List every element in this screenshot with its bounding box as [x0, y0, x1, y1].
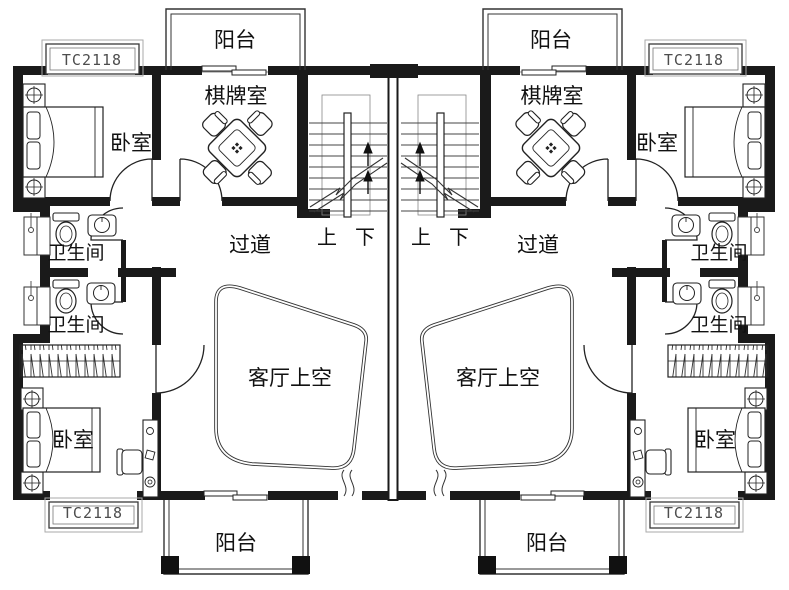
right-unit-mirrored — [394, 9, 775, 574]
bathroom-label-left-lower: 卫生间 — [47, 314, 104, 336]
bathroom-label-right-upper: 卫生间 — [690, 242, 747, 264]
corridor-label-right: 过道 — [517, 233, 559, 257]
party-wall — [370, 64, 418, 500]
balcony-label-bottom-left: 阳台 — [215, 531, 257, 555]
stairs-up-label-right: 上 — [411, 225, 431, 249]
bedroom-label-top-right: 卧室 — [636, 131, 678, 155]
window-code-top-right: TC2118 — [664, 51, 724, 69]
window-code-bottom-right: TC2118 — [664, 504, 724, 522]
left-unit — [13, 9, 394, 574]
bathroom-label-right-lower: 卫生间 — [690, 314, 747, 336]
living-void-label-left: 客厅上空 — [248, 366, 332, 390]
floor-plan-page: TC2118 TC2118 TC2118 TC2118 阳台 阳台 阳台 阳台 … — [0, 0, 789, 590]
bedroom-label-bottom-left: 卧室 — [52, 428, 94, 452]
balcony-label-bottom-right: 阳台 — [526, 531, 568, 555]
stairs-down-label-right: 下 — [449, 225, 469, 249]
bathroom-label-left-upper: 卫生间 — [47, 242, 104, 264]
window-code-top-left: TC2118 — [62, 51, 122, 69]
balcony-label-top-left: 阳台 — [214, 28, 256, 52]
chess-room-label-left: 棋牌室 — [205, 84, 268, 108]
balcony-label-top-right: 阳台 — [530, 28, 572, 52]
bedroom-label-bottom-right: 卧室 — [694, 428, 736, 452]
corridor-label-left: 过道 — [229, 233, 271, 257]
chess-room-label-right: 棋牌室 — [521, 84, 584, 108]
bedroom-label-top-left: 卧室 — [110, 131, 152, 155]
floor-plan-drawing: TC2118 TC2118 TC2118 TC2118 阳台 阳台 阳台 阳台 … — [0, 0, 789, 590]
stairs-up-label-left: 上 — [317, 225, 337, 249]
living-void-label-right: 客厅上空 — [456, 366, 540, 390]
window-code-bottom-left: TC2118 — [63, 504, 123, 522]
stairs-down-label-left: 下 — [355, 225, 375, 249]
